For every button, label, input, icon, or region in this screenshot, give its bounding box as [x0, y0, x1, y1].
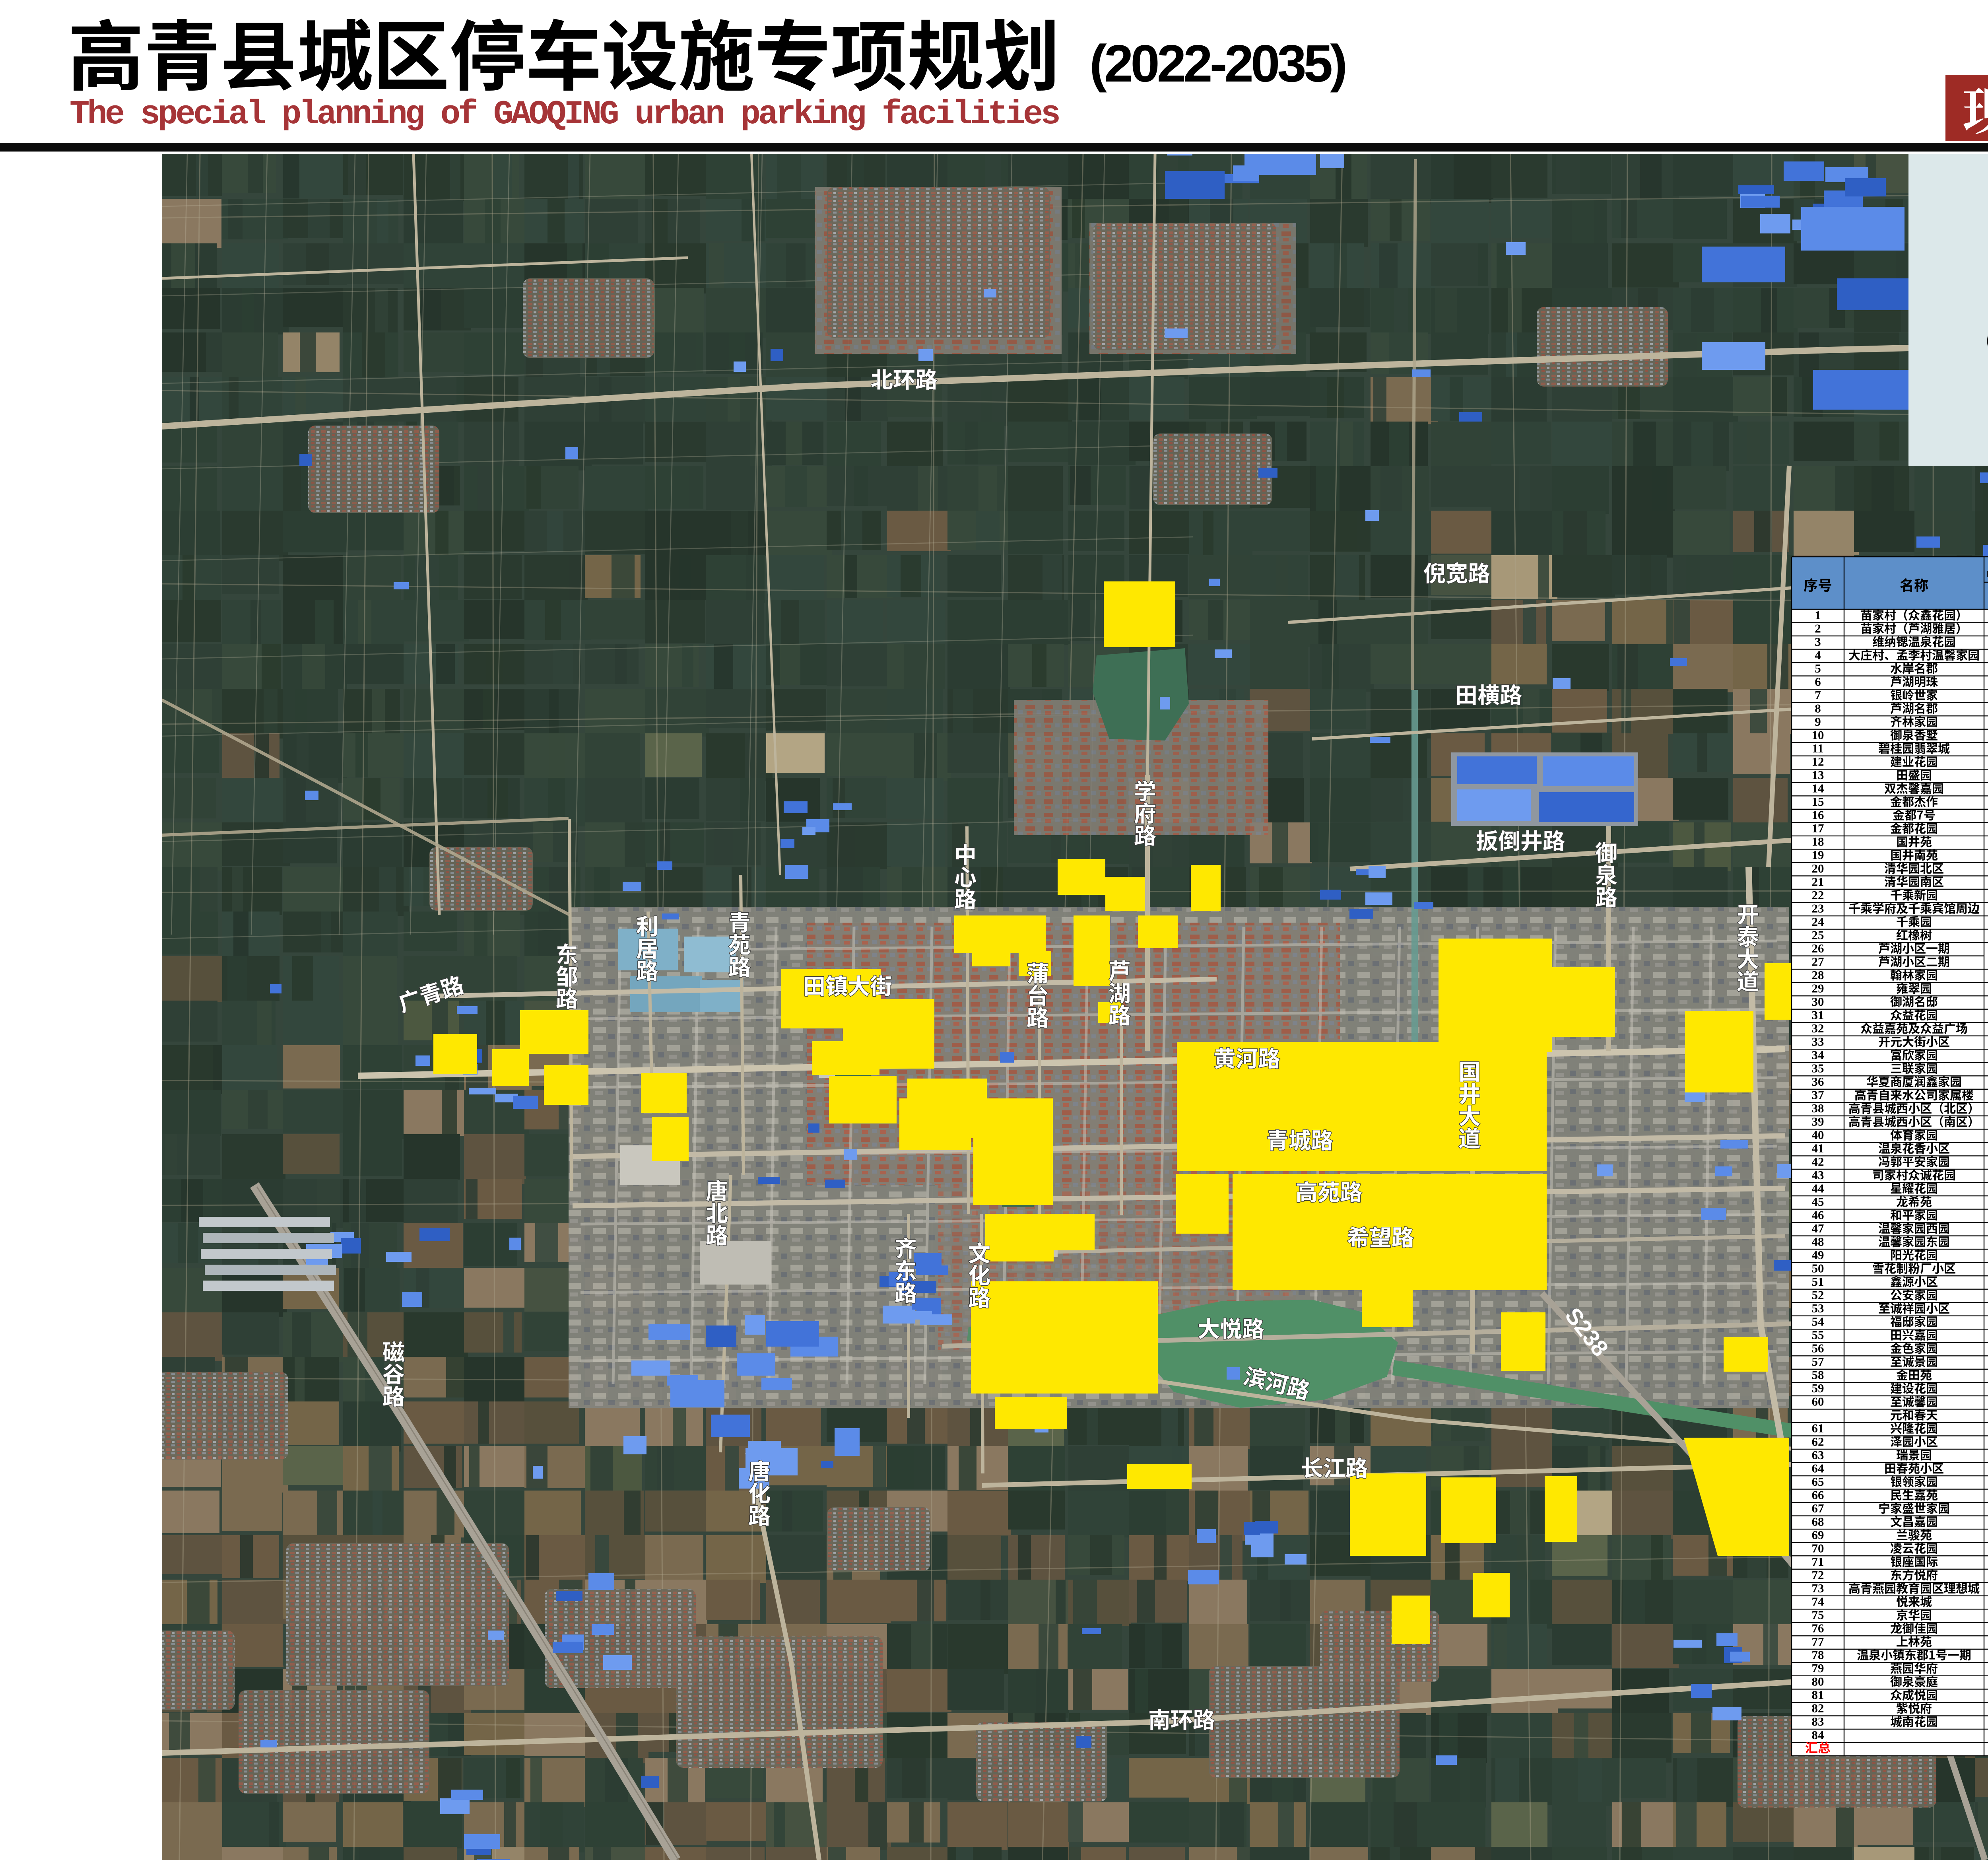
svg-text:53: 53 — [1812, 1301, 1824, 1315]
svg-text:27: 27 — [1812, 954, 1824, 968]
svg-text:13: 13 — [1812, 768, 1824, 782]
svg-text:26: 26 — [1812, 941, 1824, 955]
svg-text:38: 38 — [1812, 1101, 1824, 1115]
svg-text:36: 36 — [1812, 1075, 1824, 1088]
svg-text:81: 81 — [1812, 1688, 1824, 1702]
svg-text:54: 54 — [1812, 1315, 1824, 1329]
svg-text:71: 71 — [1812, 1555, 1824, 1568]
svg-text:69: 69 — [1812, 1528, 1824, 1542]
svg-text:40: 40 — [1812, 1128, 1824, 1142]
svg-text:22: 22 — [1812, 888, 1824, 902]
svg-text:(2022-2035): (2022-2035) — [1089, 34, 1345, 93]
svg-text:5: 5 — [1815, 661, 1821, 675]
svg-text:58: 58 — [1812, 1368, 1824, 1382]
svg-text:42: 42 — [1812, 1154, 1824, 1168]
svg-text:3: 3 — [1815, 635, 1821, 649]
svg-text:6: 6 — [1815, 674, 1821, 688]
svg-text:55: 55 — [1812, 1328, 1824, 1342]
svg-text:75: 75 — [1812, 1608, 1824, 1622]
svg-text:33: 33 — [1812, 1035, 1824, 1049]
svg-text:12: 12 — [1812, 755, 1824, 769]
svg-text:35: 35 — [1812, 1061, 1824, 1075]
svg-text:51: 51 — [1812, 1275, 1824, 1289]
svg-text:57: 57 — [1812, 1355, 1824, 1368]
svg-text:77: 77 — [1812, 1635, 1824, 1648]
svg-text:14: 14 — [1812, 781, 1824, 795]
svg-text:10: 10 — [1812, 728, 1824, 742]
svg-text:50: 50 — [1812, 1261, 1824, 1275]
svg-text:45: 45 — [1812, 1195, 1824, 1209]
svg-text:67: 67 — [1812, 1501, 1824, 1515]
svg-text:16: 16 — [1812, 808, 1824, 822]
svg-text:2: 2 — [1815, 621, 1821, 635]
svg-text:29: 29 — [1812, 981, 1824, 995]
svg-text:8: 8 — [1815, 701, 1821, 715]
svg-text:44: 44 — [1812, 1181, 1824, 1195]
svg-text:52: 52 — [1812, 1288, 1824, 1302]
svg-text:0: 0 — [1986, 327, 1988, 356]
svg-text:28: 28 — [1812, 968, 1824, 982]
svg-text:15: 15 — [1812, 795, 1824, 809]
svg-text:72: 72 — [1812, 1568, 1824, 1582]
svg-text:18: 18 — [1812, 835, 1824, 849]
svg-text:46: 46 — [1812, 1208, 1824, 1222]
svg-text:65: 65 — [1812, 1475, 1824, 1489]
svg-text:31: 31 — [1812, 1008, 1824, 1022]
svg-text:62: 62 — [1812, 1434, 1824, 1448]
svg-text:9: 9 — [1815, 715, 1821, 729]
svg-text:24: 24 — [1812, 915, 1824, 929]
svg-text:56: 56 — [1812, 1341, 1824, 1355]
svg-text:80: 80 — [1812, 1675, 1824, 1689]
svg-text:32: 32 — [1812, 1021, 1824, 1035]
svg-text:1: 1 — [1815, 608, 1821, 622]
svg-text:39: 39 — [1812, 1115, 1824, 1129]
svg-text:48: 48 — [1812, 1234, 1824, 1248]
svg-text:66: 66 — [1812, 1488, 1824, 1502]
svg-text:83: 83 — [1812, 1714, 1824, 1728]
svg-text:73: 73 — [1812, 1581, 1824, 1595]
svg-text:79: 79 — [1812, 1661, 1824, 1675]
svg-text:59: 59 — [1812, 1381, 1824, 1395]
svg-text:47: 47 — [1812, 1221, 1824, 1235]
svg-text:68: 68 — [1812, 1514, 1824, 1528]
svg-text:76: 76 — [1812, 1621, 1824, 1635]
svg-text:20: 20 — [1812, 861, 1824, 875]
svg-text:4: 4 — [1815, 648, 1821, 662]
svg-text:70: 70 — [1812, 1541, 1824, 1555]
svg-text:23: 23 — [1812, 901, 1824, 915]
svg-text:61: 61 — [1812, 1421, 1824, 1435]
svg-text:60: 60 — [1812, 1395, 1824, 1409]
svg-text:19: 19 — [1812, 848, 1824, 862]
svg-text:25: 25 — [1812, 928, 1824, 942]
svg-text:84: 84 — [1812, 1728, 1824, 1742]
svg-text:34: 34 — [1812, 1048, 1824, 1062]
svg-text:74: 74 — [1812, 1595, 1824, 1609]
svg-text:64: 64 — [1812, 1461, 1824, 1475]
svg-text:17: 17 — [1812, 821, 1824, 835]
svg-text:82: 82 — [1812, 1701, 1824, 1715]
svg-text:49: 49 — [1812, 1248, 1824, 1262]
svg-text:21: 21 — [1812, 875, 1824, 888]
svg-text:43: 43 — [1812, 1168, 1824, 1182]
svg-text:30: 30 — [1812, 995, 1824, 1009]
svg-text:63: 63 — [1812, 1448, 1824, 1462]
svg-text:78: 78 — [1812, 1648, 1824, 1662]
svg-text:7: 7 — [1815, 688, 1821, 702]
svg-text:37: 37 — [1812, 1088, 1824, 1102]
svg-text:The special planning of GAOQIN: The special planning of GAOQING urban pa… — [70, 96, 1059, 134]
svg-text:41: 41 — [1812, 1141, 1824, 1155]
svg-text:11: 11 — [1812, 741, 1823, 755]
